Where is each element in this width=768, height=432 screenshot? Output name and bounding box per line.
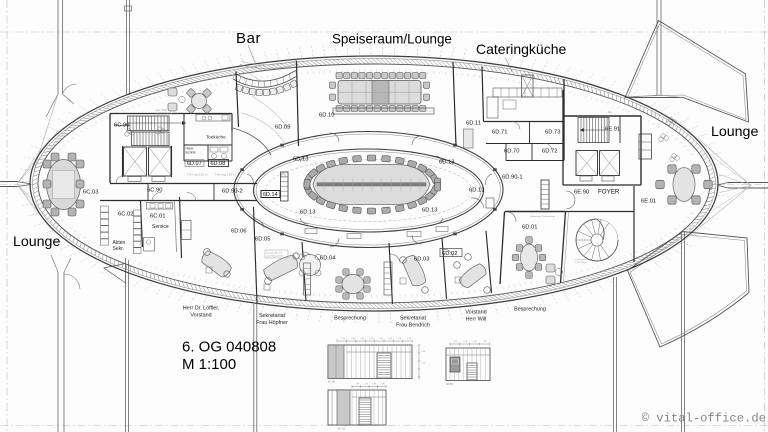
- svg-text:Drehen des Tür-: Drehen des Tür-: [267, 252, 283, 255]
- svg-text:M 1:100: M 1:100: [182, 356, 236, 373]
- svg-text:2,06-2,30m: 2,06-2,30m: [575, 262, 586, 264]
- svg-text:Cateringküche: Cateringküche: [476, 41, 566, 57]
- svg-text:6D.13: 6D.13: [293, 157, 308, 163]
- svg-text:Herr Dr. Löffler,: Herr Dr. Löffler,: [183, 306, 220, 312]
- svg-text:technik: technik: [186, 151, 197, 155]
- svg-text:FOYER: FOYER: [598, 189, 620, 196]
- svg-text:6D.07: 6D.07: [187, 161, 202, 167]
- svg-text:6D.04: 6D.04: [320, 256, 336, 262]
- svg-text:6D.10: 6D.10: [319, 113, 334, 119]
- svg-text:Teeküche: Teeküche: [206, 135, 226, 140]
- svg-text:6D.90-1: 6D.90-1: [502, 175, 523, 181]
- svg-text:anschlags prüfen: anschlags prüfen: [267, 255, 284, 258]
- svg-text:Sekr.: Sekr.: [113, 246, 124, 252]
- svg-text:6E.90: 6E.90: [574, 190, 589, 196]
- svg-text:6D.08: 6D.08: [211, 161, 226, 167]
- svg-text:6C.03: 6C.03: [83, 190, 98, 196]
- svg-text:6D.13: 6D.13: [422, 208, 437, 214]
- svg-text:Drehen des Türanschlags: Drehen des Türanschlags: [530, 215, 556, 218]
- svg-text:6D.09: 6D.09: [275, 125, 290, 131]
- svg-text:© vital-office.de: © vital-office.de: [642, 412, 766, 426]
- svg-text:Service: Service: [152, 224, 169, 230]
- svg-text:6D.72: 6D.72: [542, 149, 557, 155]
- svg-text:6C.02: 6C.02: [338, 427, 345, 431]
- svg-text:6C.90: 6C.90: [114, 123, 129, 129]
- svg-text:6D.01: 6D.01: [522, 225, 537, 231]
- svg-text:Sekretariat: Sekretariat: [259, 313, 286, 319]
- svg-text:max. Tiefe ...: max. Tiefe ...: [155, 108, 170, 112]
- svg-text:6D.05: 6D.05: [446, 382, 453, 386]
- svg-text:6D.02: 6D.02: [442, 251, 457, 257]
- svg-text:6E.91: 6E.91: [605, 127, 620, 133]
- svg-text:Bar: Bar: [236, 30, 261, 47]
- svg-text:6D.06: 6D.06: [231, 229, 246, 235]
- svg-text:6D.13: 6D.13: [300, 210, 315, 216]
- svg-text:6C.02: 6C.02: [118, 212, 133, 218]
- svg-text:6D.70: 6D.70: [504, 149, 519, 155]
- svg-text:6D.73: 6D.73: [545, 130, 560, 136]
- svg-text:6D.71: 6D.71: [492, 130, 507, 136]
- svg-text:6C.90: 6C.90: [147, 188, 162, 194]
- svg-text:Lounge: Lounge: [13, 234, 60, 250]
- svg-text:6E.01: 6E.01: [641, 199, 656, 205]
- svg-text:Vorstand: Vorstand: [465, 310, 486, 316]
- svg-text:Tür-mtg 1,10 m: Tür-mtg 1,10 m: [215, 173, 236, 177]
- svg-text:Speiseraum/Lounge: Speiseraum/Lounge: [332, 32, 452, 47]
- svg-text:6C.01: 6C.01: [150, 214, 165, 220]
- svg-text:6D.11: 6D.11: [466, 121, 481, 127]
- svg-text:6C.90: 6C.90: [328, 380, 335, 384]
- svg-text:Sekretariat: Sekretariat: [400, 316, 427, 322]
- svg-text:Frau Höpfner: Frau Höpfner: [256, 320, 288, 326]
- svg-text:6D.14: 6D.14: [263, 192, 278, 198]
- svg-text:Besprechung: Besprechung: [334, 316, 366, 322]
- svg-text:6D.05: 6D.05: [255, 237, 270, 243]
- svg-text:6D.13: 6D.13: [439, 160, 454, 166]
- svg-text:6D.90-2: 6D.90-2: [222, 189, 243, 195]
- svg-text:Stg 17,5/28 B=1,20: Stg 17,5/28 B=1,20: [155, 112, 178, 116]
- svg-text:Herr Will: Herr Will: [466, 317, 487, 323]
- svg-text:6D.03: 6D.03: [414, 257, 429, 263]
- svg-text:Frau Bendrich: Frau Bendrich: [396, 323, 430, 329]
- svg-text:Tür-mtg 2,10 m: Tür-mtg 2,10 m: [187, 173, 208, 177]
- svg-text:Besprechung: Besprechung: [514, 307, 546, 313]
- svg-text:Lounge: Lounge: [711, 124, 758, 140]
- svg-text:Durchgangshöhe: Durchgangshöhe: [575, 258, 592, 261]
- svg-text:6D.12: 6D.12: [469, 188, 484, 194]
- svg-text:6. OG 040808: 6. OG 040808: [182, 339, 276, 356]
- svg-text:Vorstand: Vorstand: [190, 313, 211, 319]
